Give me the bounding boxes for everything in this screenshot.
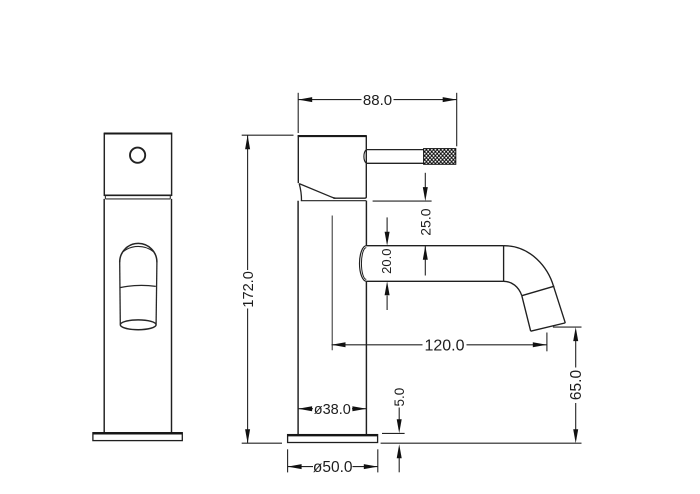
svg-text:25.0: 25.0 xyxy=(417,208,433,235)
svg-text:ø50.0: ø50.0 xyxy=(313,459,353,476)
svg-text:65.0: 65.0 xyxy=(568,370,585,401)
svg-text:88.0: 88.0 xyxy=(363,92,392,109)
svg-text:172.0: 172.0 xyxy=(241,271,257,308)
svg-text:20.0: 20.0 xyxy=(379,249,394,274)
svg-text:5.0: 5.0 xyxy=(392,388,407,407)
svg-text:120.0: 120.0 xyxy=(424,338,464,355)
svg-text:ø38.0: ø38.0 xyxy=(314,402,351,418)
